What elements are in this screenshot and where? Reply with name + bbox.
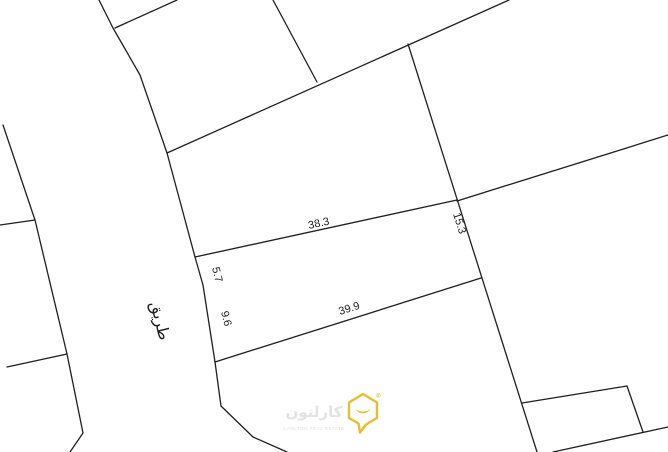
- watermark: كارلتون CARLTON REAL ESTATE ®: [283, 393, 381, 433]
- road-right-edge: [99, 0, 287, 452]
- dim-5-7-label: 5.7: [209, 266, 224, 284]
- top-left-divider: [115, 0, 177, 28]
- registered-trademark-icon: ®: [376, 393, 381, 400]
- plot-bottom-boundary: [215, 278, 481, 362]
- road-left-edge: [3, 125, 83, 452]
- cadastral-plot-map: 38.3 15.3 5.7 9.6 39.9 طريق كارلتون CARL…: [0, 0, 668, 452]
- west-branch-lower: [7, 354, 67, 367]
- top-divider: [273, 0, 317, 82]
- road-name-label: طريق: [145, 299, 174, 342]
- plot-top-boundary: [195, 200, 457, 257]
- building-right-edge: [627, 386, 643, 432]
- east-boundary: [408, 44, 537, 452]
- dim-9-6-label: 9.6: [218, 310, 233, 328]
- west-branch-upper: [0, 220, 35, 225]
- watermark-brand-arabic: كارلتون: [286, 403, 343, 421]
- dim-15-3-label: 15.3: [450, 211, 468, 235]
- dim-38-3-label: 38.3: [307, 216, 331, 232]
- dim-39-9-label: 39.9: [337, 300, 361, 318]
- southeast-boundary: [553, 427, 668, 452]
- northeast-boundary: [457, 135, 668, 201]
- carlton-smile-house-icon: ®: [349, 393, 381, 433]
- building-top-edge: [522, 386, 627, 403]
- upper-diagonal-boundary: [167, 0, 509, 153]
- plot-map-drawing: 38.3 15.3 5.7 9.6 39.9 طريق كارلتون CARL…: [0, 0, 668, 452]
- watermark-brand-english: CARLTON REAL ESTATE: [283, 426, 345, 431]
